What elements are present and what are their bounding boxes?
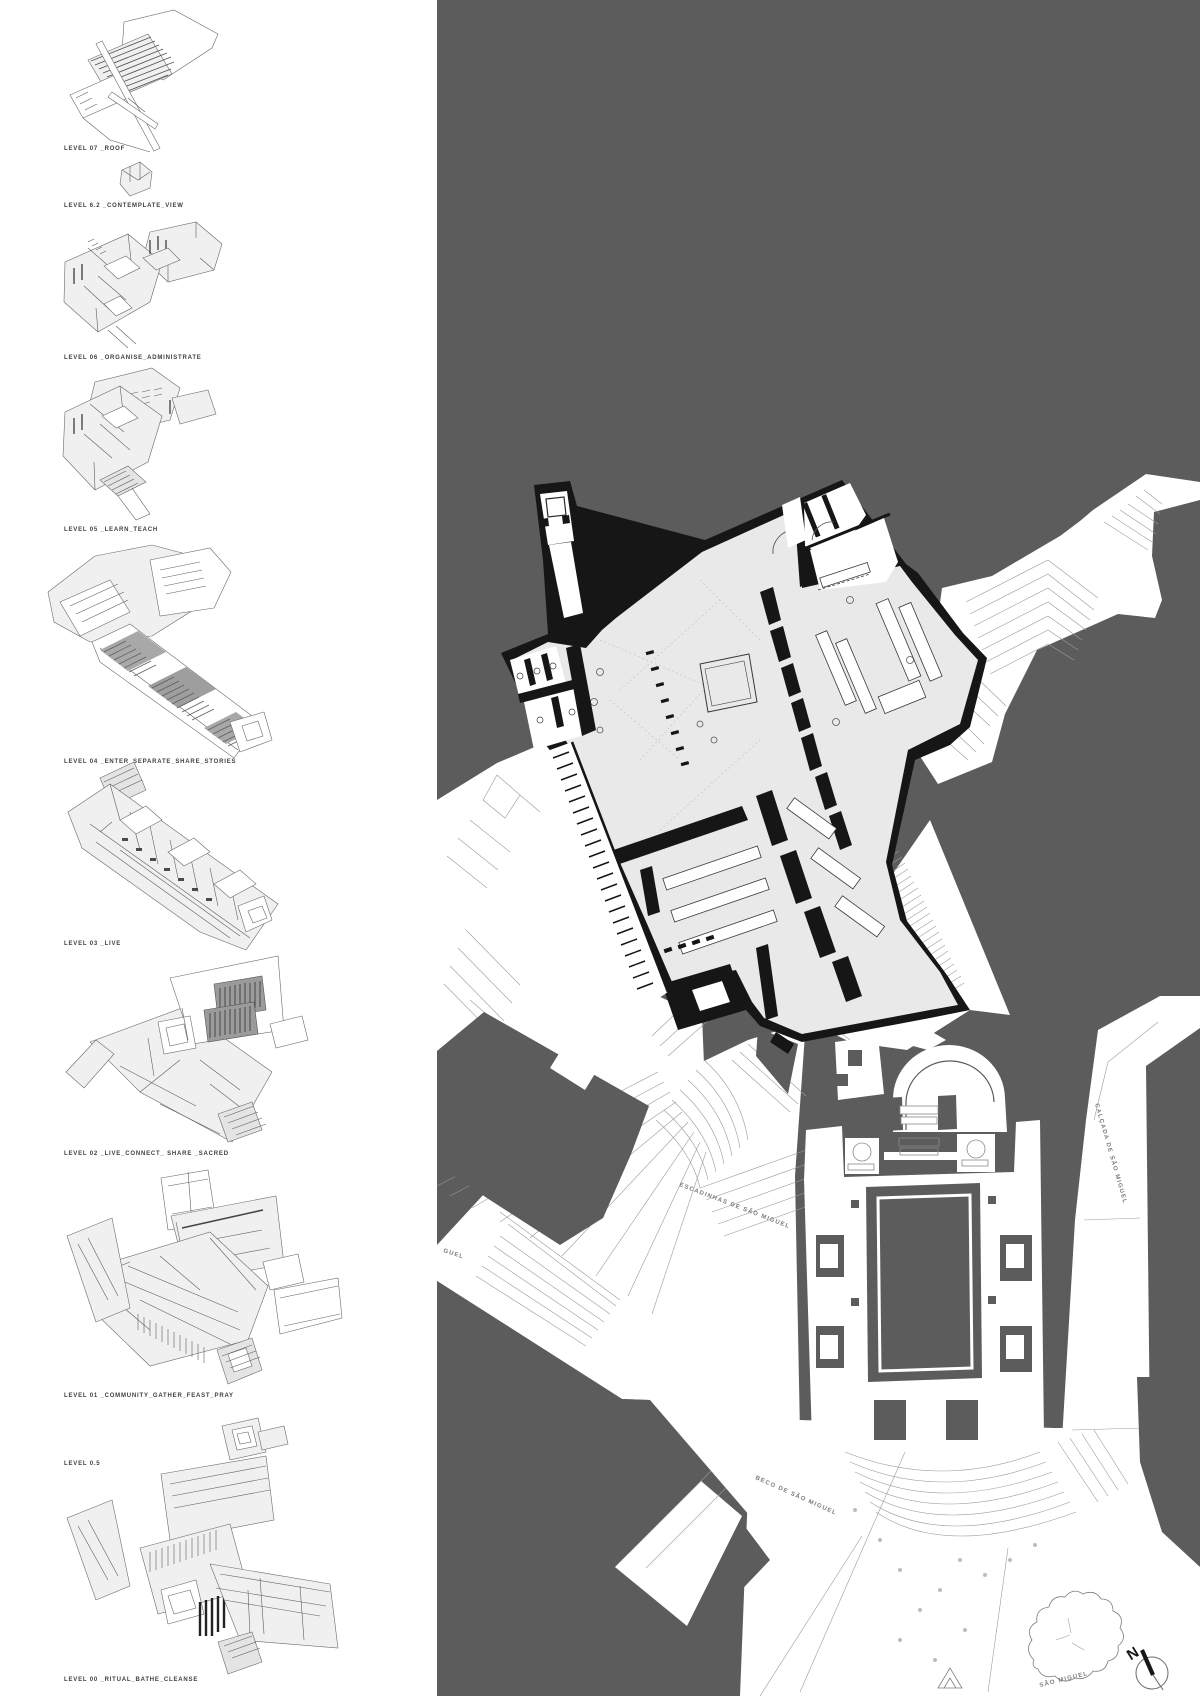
svg-text:LEVEL 01 _COMMUNITY_GATHER_FE: LEVEL 01 _COMMUNITY_GATHER_FEAST_PRAY [64,1393,234,1399]
svg-text:LEVEL 06 _ORGANISE_ADMINISTRA: LEVEL 06 _ORGANISE_ADMINISTRATE [64,355,202,361]
svg-text:LEVEL 04 _ENTER_SEPARATE_SHAR: LEVEL 04 _ENTER_SEPARATE_SHARE_STORIES [64,759,236,765]
svg-text:LEVEL 07 _ROOF: LEVEL 07 _ROOF [64,146,125,152]
svg-text:LEVEL 03 _LIVE: LEVEL 03 _LIVE [64,941,121,947]
svg-text:LEVEL 02 _LIVE_CONNECT_ SHARE: LEVEL 02 _LIVE_CONNECT_ SHARE _SACRED [64,1151,229,1157]
svg-text:LEVEL 0.5: LEVEL 0.5 [64,1461,100,1467]
svg-text:LEVEL 00 _RITUAL_BATHE_CLEANS: LEVEL 00 _RITUAL_BATHE_CLEANSE [64,1677,198,1683]
svg-text:LEVEL 6.2 _CONTEMPLATE_VIEW: LEVEL 6.2 _CONTEMPLATE_VIEW [64,203,184,209]
svg-text:LEVEL 05 _LEARN_TEACH: LEVEL 05 _LEARN_TEACH [64,527,158,533]
